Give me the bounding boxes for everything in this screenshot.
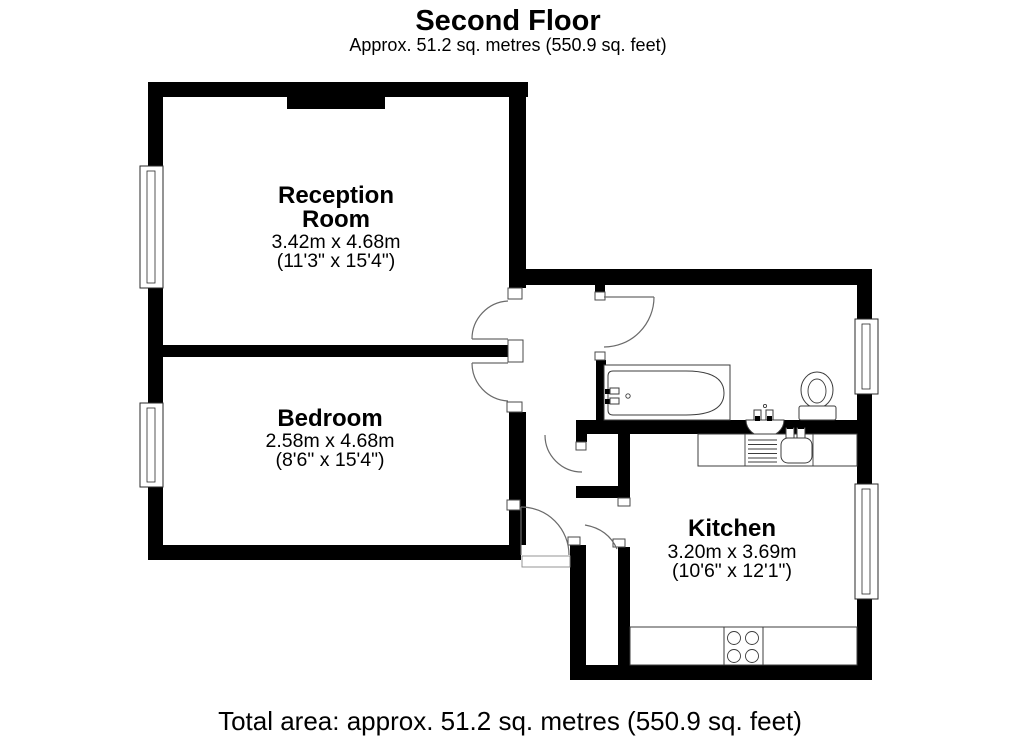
wall-segment [509, 412, 526, 545]
toilet-icon [799, 372, 836, 420]
wall-segment [570, 665, 872, 680]
jamb-mark [508, 288, 522, 299]
jamb-mark [568, 537, 580, 545]
floorplan-page: Second Floor Approx. 51.2 sq. metres (55… [0, 0, 1020, 741]
wall-room-divider [163, 345, 508, 357]
window-reception [140, 166, 163, 288]
reception-room-label: Reception Room 3.42m x 4.68m (11'3" x 15… [272, 182, 401, 272]
total-area-text: Total area: approx. 51.2 sq. metres (550… [218, 706, 802, 736]
entrance-threshold [522, 556, 570, 567]
wall-corridor-left [570, 545, 586, 665]
jamb-mark [595, 292, 605, 300]
kitchen-size-imperial: (10'6" x 12'1") [672, 560, 792, 582]
window-bathroom [855, 319, 878, 394]
jamb-mark [595, 352, 605, 360]
wall-segment [148, 288, 163, 404]
wall-cupboard-stub [576, 434, 587, 442]
wall-segment [148, 545, 521, 560]
bedroom-label: Bedroom 2.58m x 4.68m (8'6" x 15'4") [266, 405, 395, 471]
walls [148, 82, 872, 680]
door-arc-bathroom [604, 297, 654, 347]
window-kitchen [855, 484, 878, 599]
kitchen-label: Kitchen 3.20m x 3.69m (10'6" x 12'1") [668, 515, 797, 582]
door-arc-kitchen [585, 525, 617, 549]
wall-segment [148, 97, 163, 167]
floorplan-canvas: Second Floor Approx. 51.2 sq. metres (55… [0, 0, 1020, 741]
wall-door-stub [595, 285, 605, 292]
jamb-mark [618, 498, 630, 506]
wall-segment [509, 97, 526, 288]
window-bedroom [140, 403, 163, 487]
door-arc-entrance [521, 507, 569, 555]
bath-icon [604, 365, 730, 420]
wall-segment [857, 285, 872, 320]
wall-corridor-right [618, 547, 630, 665]
reception-name-line2: Room [302, 206, 370, 233]
basin-icon [746, 404, 784, 437]
hob-icon [724, 627, 763, 665]
reception-name-line1: Reception [278, 182, 394, 209]
page-subtitle: Approx. 51.2 sq. metres (550.9 sq. feet) [349, 35, 666, 55]
door-arc-bedroom [472, 363, 508, 401]
wall-chimney-notch [287, 97, 385, 109]
wall-segment [148, 82, 528, 97]
wall-segment [857, 393, 872, 485]
kitchen-name: Kitchen [688, 515, 776, 542]
door-arc-reception [472, 301, 508, 339]
wall-segment [526, 269, 872, 285]
wall-segment [576, 486, 630, 498]
jamb-mark [507, 500, 520, 510]
jamb-mark [508, 340, 523, 362]
bedroom-name: Bedroom [277, 405, 382, 432]
kitchen-counter-top [698, 434, 857, 466]
jamb-mark [576, 442, 586, 450]
page-title: Second Floor [415, 5, 600, 37]
wall-bathroom-kitchen-divider [576, 420, 872, 434]
reception-size-imperial: (11'3" x 15'4") [277, 250, 396, 272]
bedroom-size-imperial: (8'6" x 15'4") [275, 449, 384, 471]
jamb-mark [507, 402, 522, 412]
